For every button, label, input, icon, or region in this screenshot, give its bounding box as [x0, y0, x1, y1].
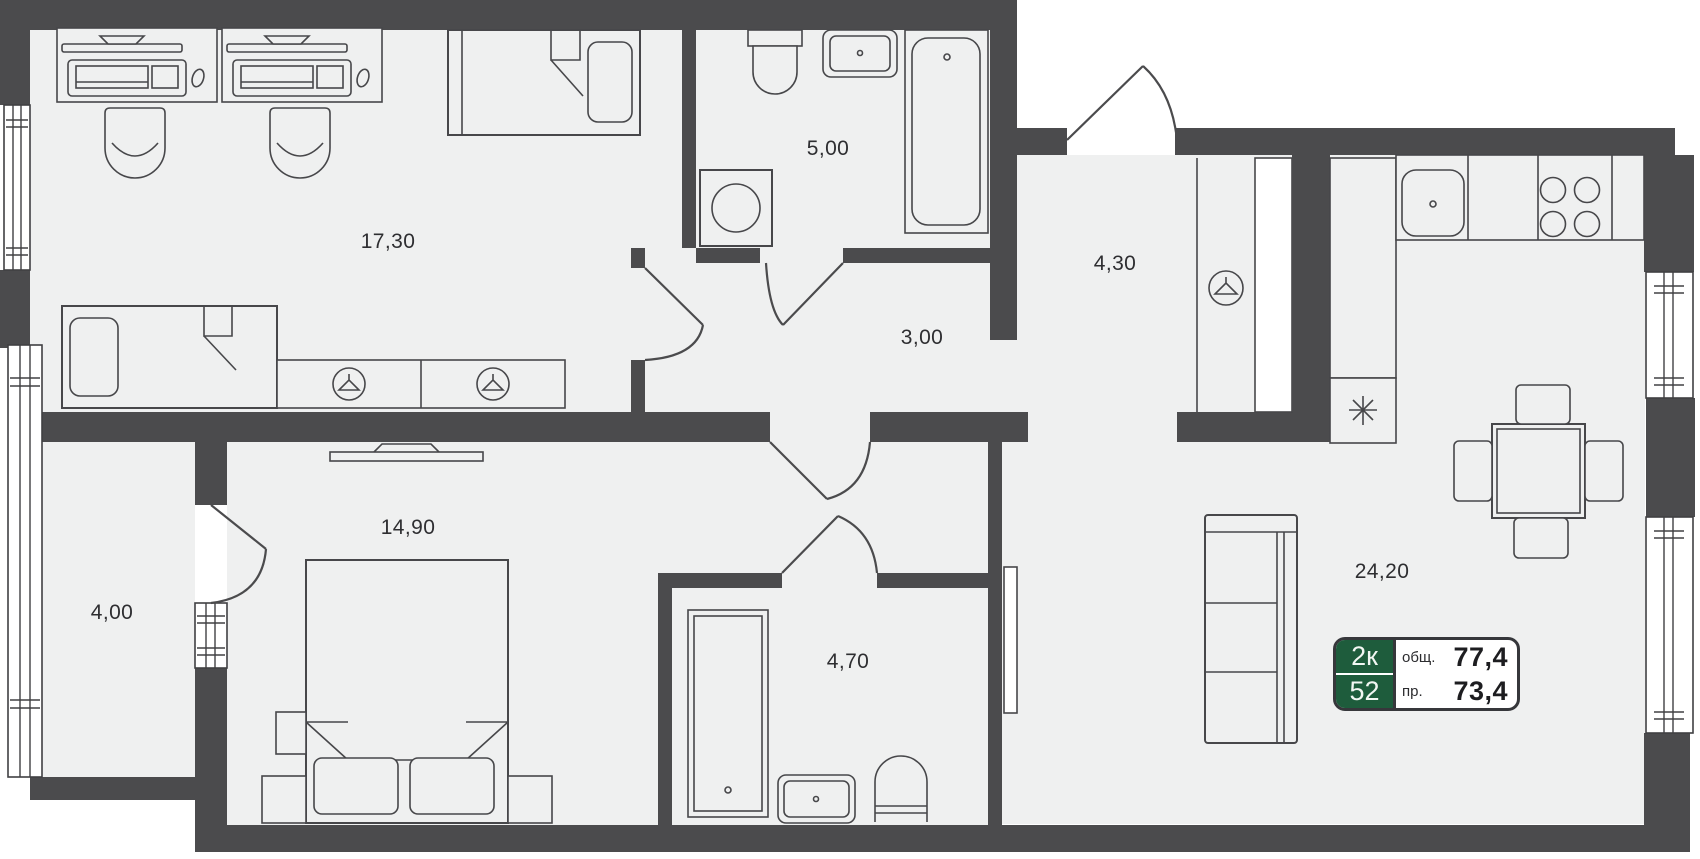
- kitchen-counter: [1396, 155, 1644, 240]
- office-chair-icon: [105, 108, 165, 178]
- hanger-icon: [477, 368, 509, 400]
- living-area-value: 73,4: [1453, 676, 1508, 707]
- floor-plan-drawing: [0, 0, 1700, 859]
- toilet-icon: [875, 756, 927, 822]
- room-label-hallway: 3,00: [901, 326, 943, 350]
- bathtub-icon: [905, 30, 988, 233]
- total-area-value: 77,4: [1453, 642, 1508, 673]
- total-area-label: общ.: [1402, 649, 1435, 666]
- apartment-info-badge: 2к 52 общ. 77,4 пр. 73,4: [1333, 637, 1520, 711]
- chair-icon: [1516, 385, 1570, 424]
- sink-icon: [823, 30, 897, 77]
- hanger-icon: [1209, 271, 1243, 305]
- chair-icon: [1514, 518, 1568, 558]
- unit-number: 52: [1336, 675, 1393, 708]
- badge-green-column: 2к 52: [1336, 640, 1393, 708]
- chair-icon: [1454, 441, 1492, 501]
- fridge-snowflake-icon: [1330, 378, 1396, 443]
- room-label-balcony: 4,00: [91, 601, 133, 625]
- window-icon: [1646, 272, 1693, 398]
- shower-icon: [688, 610, 768, 817]
- sink-icon: [778, 775, 855, 823]
- kitchen-sink-icon: [1402, 170, 1464, 236]
- chair-icon: [1585, 441, 1623, 501]
- room-label-bathroom: 5,00: [807, 137, 849, 161]
- nightstand-icon: [262, 776, 306, 823]
- living-area-label: пр.: [1402, 683, 1423, 700]
- toilet-icon: [748, 30, 802, 94]
- single-bed-icon: [62, 306, 277, 408]
- window-icon: [195, 603, 227, 668]
- room-label-bedroom: 14,90: [381, 516, 436, 540]
- window-icon: [1646, 517, 1693, 733]
- sofa-icon: [1205, 515, 1297, 743]
- office-chair-icon: [270, 108, 330, 178]
- washing-machine-icon: [700, 170, 772, 246]
- desk-icon: [57, 28, 217, 102]
- side-table-icon: [276, 712, 306, 754]
- kitchen-cabinet-icon: [1330, 158, 1396, 378]
- nightstand-icon: [508, 776, 552, 823]
- room-label-shower-room: 4,70: [827, 650, 869, 674]
- room-label-bedroom-office: 17,30: [361, 230, 416, 254]
- desk-icon: [222, 28, 382, 102]
- floor-plan: 17,30 5,00 3,00 4,30 14,90 4,00 4,70 24,…: [0, 0, 1700, 859]
- room-label-entry-hall: 4,30: [1094, 252, 1136, 276]
- single-bed-icon: [448, 30, 640, 135]
- rooms-count: 2к: [1336, 640, 1393, 675]
- entrance-door-swing: [1067, 66, 1177, 155]
- window-icon: [8, 345, 42, 777]
- shaft: [1255, 155, 1330, 412]
- badge-areas-column: общ. 77,4 пр. 73,4: [1393, 640, 1517, 708]
- double-bed-icon: [306, 560, 508, 823]
- hanger-icon: [333, 368, 365, 400]
- radiator-panel-icon: [1004, 567, 1017, 713]
- room-label-kitchen-living-room: 24,20: [1355, 560, 1410, 584]
- wardrobe-icon: [277, 360, 565, 408]
- window-icon: [4, 105, 30, 270]
